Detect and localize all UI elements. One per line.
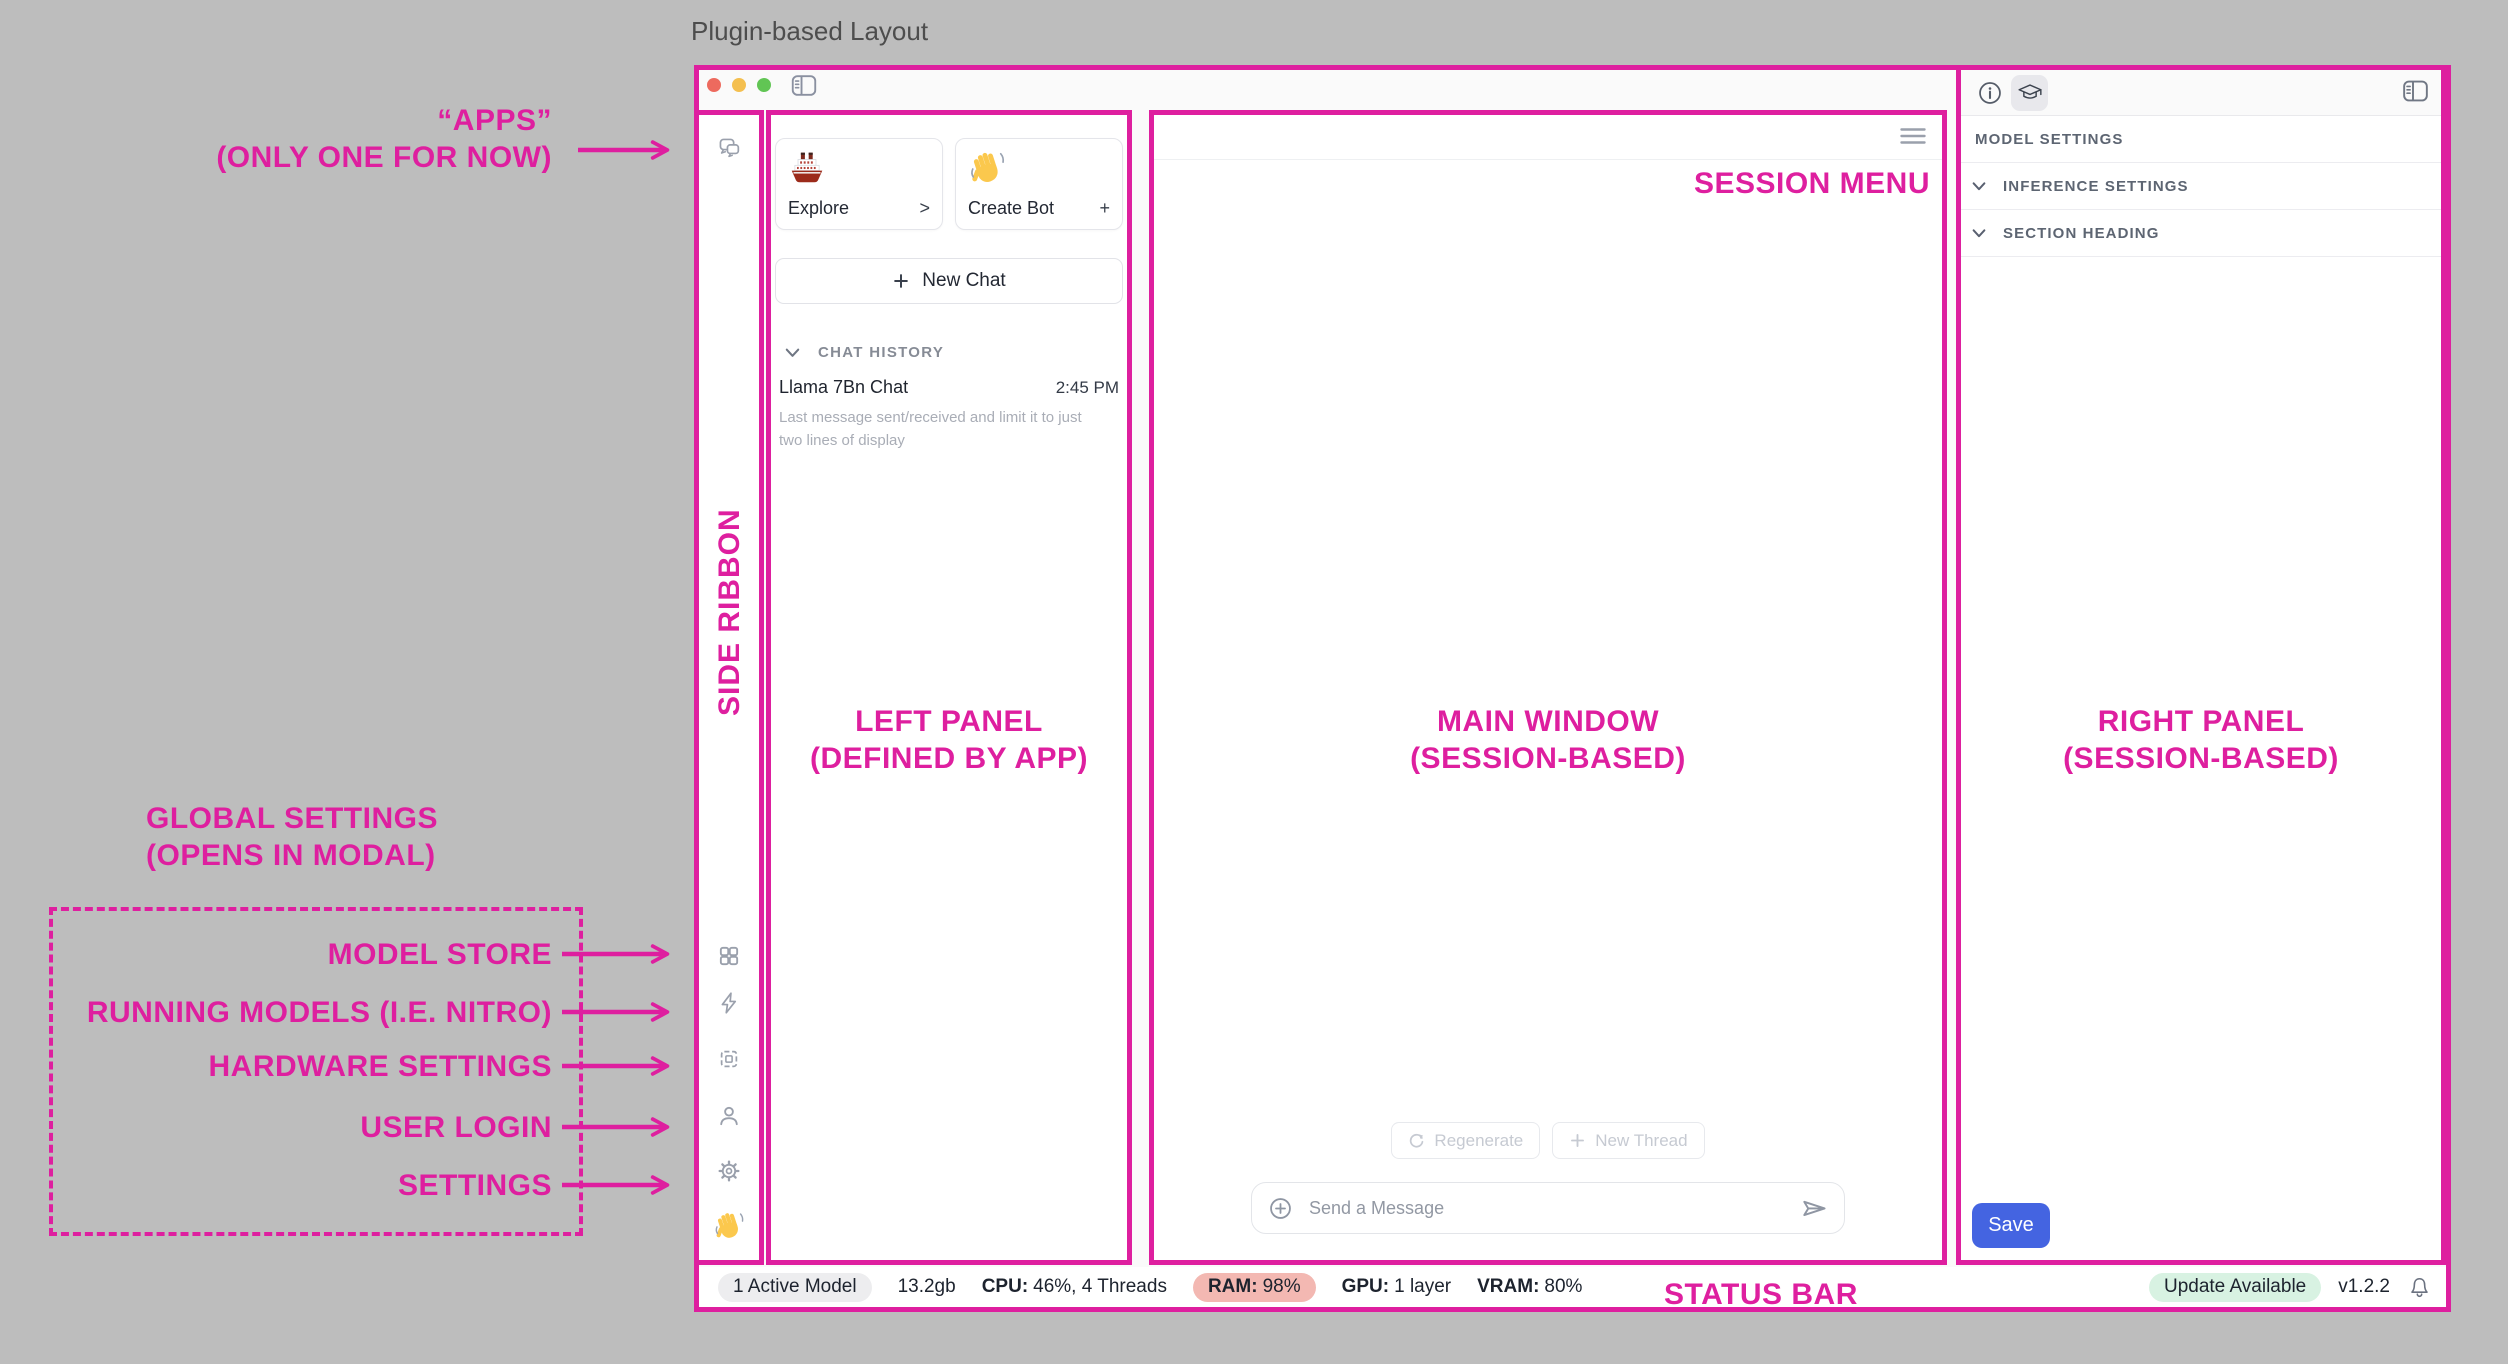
cpu-metric: CPU:46%, 4 Threads [982, 1276, 1167, 1298]
create-bot-label: Create Bot [968, 198, 1054, 219]
chat-history-label: CHAT HISTORY [818, 344, 944, 361]
model-store-icon[interactable] [715, 942, 743, 970]
chevron-down-icon [783, 343, 802, 362]
new-thread-button[interactable]: New Thread [1552, 1122, 1704, 1159]
annotation-global-settings-line1: GLOBAL SETTINGS [146, 800, 438, 837]
new-thread-label: New Thread [1595, 1131, 1687, 1151]
annotation-hardware-settings: HARDWARE SETTINGS [208, 1048, 552, 1085]
plus-icon [1569, 1132, 1586, 1149]
explore-action: > [919, 198, 930, 219]
gpu-key: GPU: [1342, 1276, 1390, 1297]
annotation-left-panel-line2: (DEFINED BY APP) [766, 740, 1132, 777]
graduation-cap-icon [2017, 80, 2043, 106]
status-metrics: 1 Active Model 13.2gb CPU:46%, 4 Threads… [718, 1267, 1582, 1307]
page-title: Plugin-based Layout [691, 16, 928, 47]
annotation-left-panel-line1: LEFT PANEL [766, 703, 1132, 740]
inference-settings-row[interactable]: INFERENCE SETTINGS [1961, 163, 2441, 210]
inference-settings-label: INFERENCE SETTINGS [2003, 178, 2189, 195]
annotation-user-login: USER LOGIN [360, 1109, 552, 1146]
new-chat-label: New Chat [922, 270, 1005, 292]
annotation-running-models: RUNNING MODELS (I.E. NITRO) [87, 994, 552, 1031]
vram-value: 80% [1544, 1276, 1582, 1297]
annotation-apps: “APPS” (ONLY ONE FOR NOW) [150, 102, 552, 176]
version-label: v1.2.2 [2338, 1276, 2390, 1298]
annotation-global-settings: GLOBAL SETTINGS (OPENS IN MODAL) [146, 800, 438, 874]
create-bot-action: + [1099, 198, 1110, 219]
annotation-main-window-line2: (SESSION-BASED) [1149, 740, 1947, 777]
design-canvas: { "page": { "title": "Plugin-based Layou… [0, 0, 2508, 1364]
section-heading-row[interactable]: SECTION HEADING [1961, 210, 2441, 257]
refresh-icon [1408, 1132, 1425, 1149]
traffic-light-minimize[interactable] [732, 78, 746, 92]
annotation-right-panel-line1: RIGHT PANEL [1956, 703, 2446, 740]
save-button[interactable]: Save [1972, 1203, 2050, 1248]
status-bar: 1 Active Model 13.2gb CPU:46%, 4 Threads… [699, 1267, 2446, 1307]
right-panel-header [1961, 70, 2441, 116]
sidebar-toggle-icon[interactable] [791, 75, 817, 96]
annotation-global-settings-line2: (OPENS IN MODAL) [146, 837, 438, 874]
chat-title: Llama 7Bn Chat [779, 377, 908, 398]
chat-history-item[interactable]: Llama 7Bn Chat 2:45 PM Last message sent… [775, 377, 1123, 452]
annotation-side-ribbon: SIDE RIBBON [711, 505, 747, 720]
annotation-apps-line2: (ONLY ONE FOR NOW) [150, 139, 552, 176]
model-settings-label: MODEL SETTINGS [1975, 131, 2123, 148]
send-icon[interactable] [1799, 1193, 1829, 1223]
memory-size: 13.2gb [898, 1276, 956, 1298]
chat-history-header[interactable]: CHAT HISTORY [783, 343, 944, 362]
status-right: Update Available v1.2.2 [2149, 1267, 2432, 1307]
attach-plus-icon[interactable] [1267, 1195, 1294, 1222]
left-panel: Explore > Create Bot + New Chat CHAT HIS… [766, 110, 1132, 1265]
annotation-main-window: MAIN WINDOW (SESSION-BASED) [1149, 703, 1947, 777]
info-icon[interactable] [1977, 80, 2003, 106]
new-chat-button[interactable]: New Chat [775, 258, 1123, 304]
cpu-value: 46%, 4 Threads [1033, 1276, 1167, 1297]
traffic-light-close[interactable] [707, 78, 721, 92]
message-composer[interactable] [1251, 1182, 1845, 1234]
vram-key: VRAM: [1477, 1276, 1539, 1297]
annotation-status-bar: STATUS BAR [1664, 1276, 1858, 1313]
regenerate-label: Regenerate [1434, 1131, 1523, 1151]
section-heading-label: SECTION HEADING [2003, 225, 2160, 242]
hamburger-icon[interactable] [1900, 127, 1926, 145]
settings-gear-icon[interactable] [715, 1157, 743, 1185]
annotation-session-menu: SESSION MENU [1694, 165, 1930, 202]
annotation-main-window-line1: MAIN WINDOW [1149, 703, 1947, 740]
user-login-icon[interactable] [715, 1102, 743, 1130]
annotation-right-panel-line2: (SESSION-BASED) [1956, 740, 2446, 777]
chat-icon[interactable] [715, 134, 743, 162]
ram-key: RAM: [1208, 1276, 1258, 1298]
explore-card[interactable]: Explore > [775, 138, 943, 230]
sidebar-toggle-icon[interactable] [2403, 80, 2428, 102]
chat-timestamp: 2:45 PM [1056, 378, 1119, 398]
chat-preview: Last message sent/received and limit it … [779, 406, 1109, 452]
message-input[interactable] [1309, 1198, 1784, 1219]
cpu-key: CPU: [982, 1276, 1028, 1297]
thread-actions: Regenerate New Thread [1154, 1122, 1942, 1159]
gpu-metric: GPU:1 layer [1342, 1276, 1452, 1298]
model-settings-row[interactable]: MODEL SETTINGS [1961, 116, 2441, 163]
right-panel: MODEL SETTINGS INFERENCE SETTINGS SECTIO… [1956, 65, 2446, 1265]
traffic-light-zoom[interactable] [757, 78, 771, 92]
vram-metric: VRAM:80% [1477, 1276, 1582, 1298]
annotation-left-panel: LEFT PANEL (DEFINED BY APP) [766, 703, 1132, 777]
ram-warning-badge: RAM:98% [1193, 1273, 1316, 1302]
annotation-right-panel: RIGHT PANEL (SESSION-BASED) [1956, 703, 2446, 777]
main-window: Regenerate New Thread [1149, 110, 1947, 1265]
update-available-badge[interactable]: Update Available [2149, 1273, 2321, 1302]
running-models-icon[interactable] [715, 989, 743, 1017]
explore-label: Explore [788, 198, 849, 219]
annotation-model-store: MODEL STORE [328, 936, 552, 973]
wave-emoji [968, 149, 1006, 187]
ram-value: 98% [1263, 1276, 1301, 1298]
active-model-badge: 1 Active Model [718, 1273, 872, 1302]
annotation-settings: SETTINGS [398, 1167, 552, 1204]
bell-icon[interactable] [2407, 1274, 2432, 1301]
plus-icon [892, 272, 910, 290]
wave-emoji[interactable] [713, 1210, 745, 1242]
assistant-tab[interactable] [2011, 75, 2048, 111]
hardware-settings-icon[interactable] [715, 1045, 743, 1073]
gpu-value: 1 layer [1394, 1276, 1451, 1297]
chevron-down-icon [1970, 177, 1988, 195]
main-window-header [1154, 115, 1942, 160]
annotation-apps-line1: “APPS” [150, 102, 552, 139]
ship-emoji [788, 149, 826, 187]
chevron-down-icon [1970, 224, 1988, 242]
create-bot-card[interactable]: Create Bot + [955, 138, 1123, 230]
regenerate-button[interactable]: Regenerate [1391, 1122, 1540, 1159]
